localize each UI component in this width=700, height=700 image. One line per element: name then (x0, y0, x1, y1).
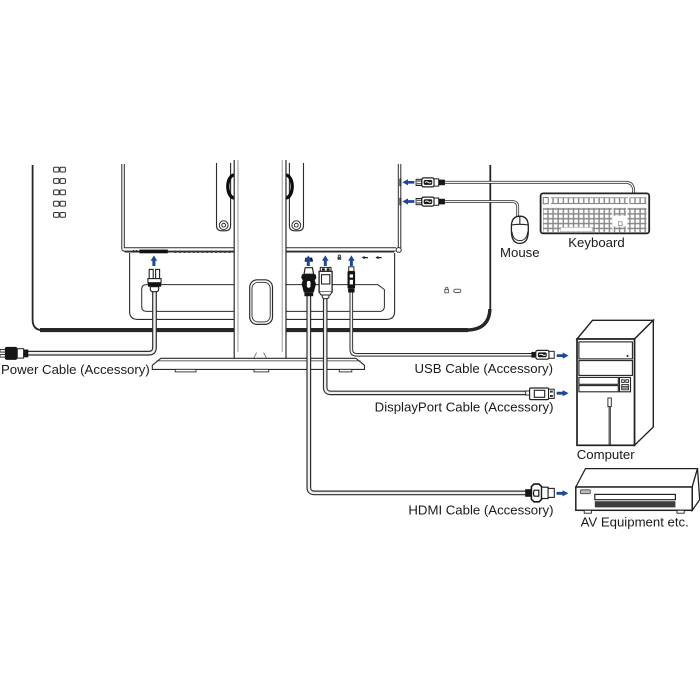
svg-text:USB Cable (Accessory): USB Cable (Accessory) (414, 361, 553, 376)
svg-text:Mouse: Mouse (500, 245, 540, 260)
svg-text:Computer: Computer (577, 447, 636, 462)
svg-text:AV Equipment etc.: AV Equipment etc. (581, 515, 689, 530)
svg-text:Keyboard: Keyboard (568, 235, 624, 250)
svg-text:HDMI Cable (Accessory): HDMI Cable (Accessory) (408, 502, 553, 517)
svg-text:Power Cable (Accessory): Power Cable (Accessory) (1, 362, 150, 377)
svg-text:DisplayPort Cable (Accessory): DisplayPort Cable (Accessory) (375, 400, 554, 415)
